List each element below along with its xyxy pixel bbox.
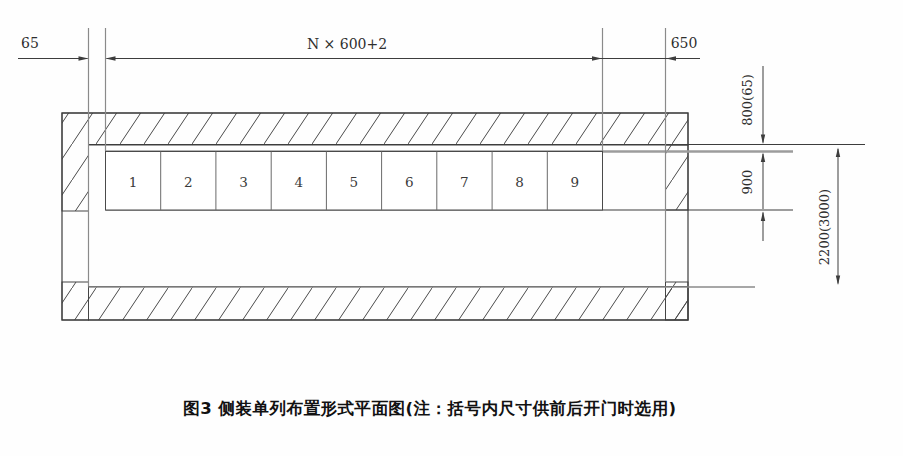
dim-2200-label: 2200(3000) — [817, 189, 832, 265]
cabinet-8-label: 8 — [515, 174, 524, 190]
cabinet-3-label: 3 — [239, 174, 248, 190]
dim-650-label: 650 — [671, 35, 698, 51]
cabinet-9-label: 9 — [571, 174, 580, 190]
dim-n600-label: N × 600+2 — [307, 36, 387, 52]
top-wall — [89, 113, 689, 145]
cabinet-7-label: 7 — [460, 174, 469, 190]
dim-800-label: 800(65) — [740, 74, 755, 126]
top-dimension: 65 N × 600+2 650 — [18, 35, 700, 61]
left-wall-lower — [62, 282, 89, 320]
cabinet-1-label: 1 — [129, 174, 138, 190]
right-dimensions: 800(65) 900 2200(3000) — [740, 66, 841, 285]
dim-900-label: 900 — [740, 170, 755, 195]
cabinet-row: 1 2 3 4 5 6 7 8 9 — [106, 152, 603, 211]
left-wall-upper — [62, 113, 89, 211]
cabinet-4-label: 4 — [294, 174, 303, 190]
figure-caption: 图3 侧装单列布置形式平面图(注：括号内尺寸供前后开门时选用) — [0, 398, 860, 420]
bottom-wall — [89, 287, 689, 321]
cabinet-5-label: 5 — [350, 174, 359, 190]
cabinet-6-label: 6 — [405, 174, 414, 190]
dim-65-label: 65 — [21, 35, 39, 51]
right-wall-upper — [666, 145, 689, 210]
cabinet-2-label: 2 — [184, 174, 193, 190]
figure-page: 1 2 3 4 5 6 7 8 9 65 N × 600+2 650 — [0, 0, 903, 456]
plan-drawing: 1 2 3 4 5 6 7 8 9 65 N × 600+2 650 — [0, 0, 903, 456]
